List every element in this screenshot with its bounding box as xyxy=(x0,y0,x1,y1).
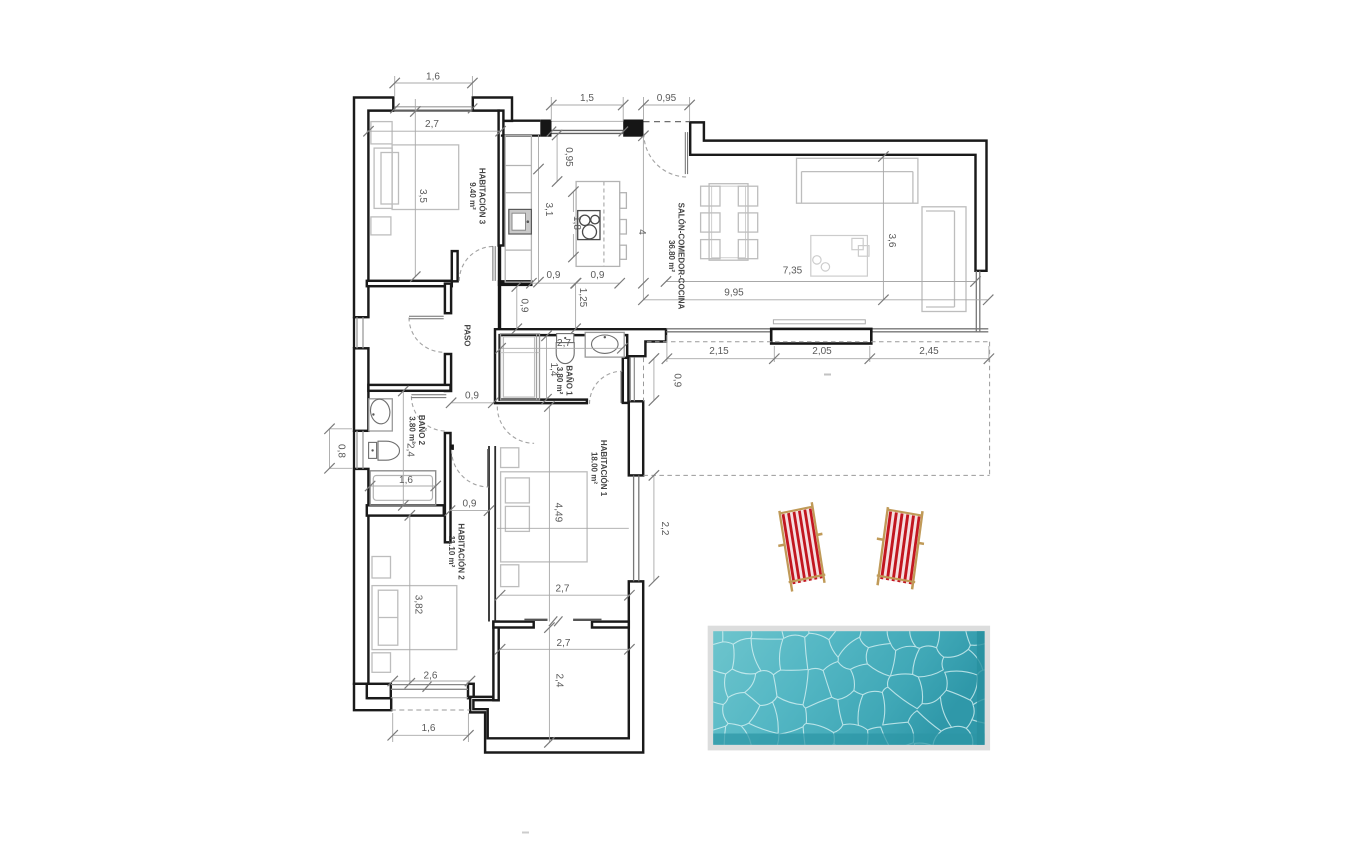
svg-text:7,35: 7,35 xyxy=(783,266,803,277)
svg-text:2,15: 2,15 xyxy=(709,346,729,357)
svg-text:2,7: 2,7 xyxy=(557,338,571,349)
svg-text:HABITACIÓN 1: HABITACIÓN 1 xyxy=(599,440,608,497)
svg-text:9,95: 9,95 xyxy=(724,288,744,299)
svg-text:1,25: 1,25 xyxy=(577,288,588,308)
svg-text:BAÑO 2: BAÑO 2 xyxy=(417,415,426,446)
svg-text:3.80 m²: 3.80 m² xyxy=(407,416,416,444)
svg-text:4,49: 4,49 xyxy=(552,503,563,523)
svg-text:9.40 m²: 9.40 m² xyxy=(468,182,477,210)
svg-text:0,9: 0,9 xyxy=(591,270,605,281)
svg-text:11.10 m²: 11.10 m² xyxy=(447,536,456,568)
svg-text:3,82: 3,82 xyxy=(412,595,423,615)
svg-text:0,95: 0,95 xyxy=(563,147,574,167)
svg-text:SALÓN-COMEDOR-COCINA: SALÓN-COMEDOR-COCINA xyxy=(677,203,686,310)
svg-text:4: 4 xyxy=(636,229,647,235)
svg-text:18.00 m²: 18.00 m² xyxy=(590,452,599,484)
svg-text:0,95: 0,95 xyxy=(657,93,677,104)
svg-text:1,6: 1,6 xyxy=(399,475,413,486)
svg-text:0,9: 0,9 xyxy=(672,373,683,387)
svg-text:PASO: PASO xyxy=(463,324,472,346)
svg-text:2,4: 2,4 xyxy=(553,674,564,688)
svg-text:HABITACIÓN 3: HABITACIÓN 3 xyxy=(478,168,487,225)
svg-text:2,2: 2,2 xyxy=(659,522,670,536)
svg-text:0,9: 0,9 xyxy=(465,391,479,402)
svg-text:3,1: 3,1 xyxy=(543,203,554,217)
svg-text:1,6: 1,6 xyxy=(426,72,440,83)
svg-text:3,5: 3,5 xyxy=(417,189,428,203)
svg-text:0,9: 0,9 xyxy=(547,270,561,281)
svg-text:2,6: 2,6 xyxy=(424,671,438,682)
svg-text:0,9: 0,9 xyxy=(463,499,477,510)
svg-text:BAÑO 1: BAÑO 1 xyxy=(565,365,574,396)
svg-text:1,8: 1,8 xyxy=(571,216,582,230)
svg-text:2,7: 2,7 xyxy=(557,638,571,649)
svg-text:0,9: 0,9 xyxy=(518,299,529,313)
svg-text:2,7: 2,7 xyxy=(425,119,439,130)
svg-text:1,6: 1,6 xyxy=(422,723,436,734)
svg-text:3,6: 3,6 xyxy=(886,234,897,248)
svg-text:0,8: 0,8 xyxy=(336,444,347,458)
svg-text:36.80 m²: 36.80 m² xyxy=(667,240,676,272)
svg-text:2,45: 2,45 xyxy=(919,346,939,357)
svg-text:HABITACIÓN 2: HABITACIÓN 2 xyxy=(457,523,466,580)
svg-text:2,4: 2,4 xyxy=(405,443,416,457)
svg-text:1,5: 1,5 xyxy=(580,93,594,104)
svg-text:2,05: 2,05 xyxy=(812,346,832,357)
svg-text:2,7: 2,7 xyxy=(556,584,570,595)
svg-text:3.80 m²: 3.80 m² xyxy=(555,367,564,395)
